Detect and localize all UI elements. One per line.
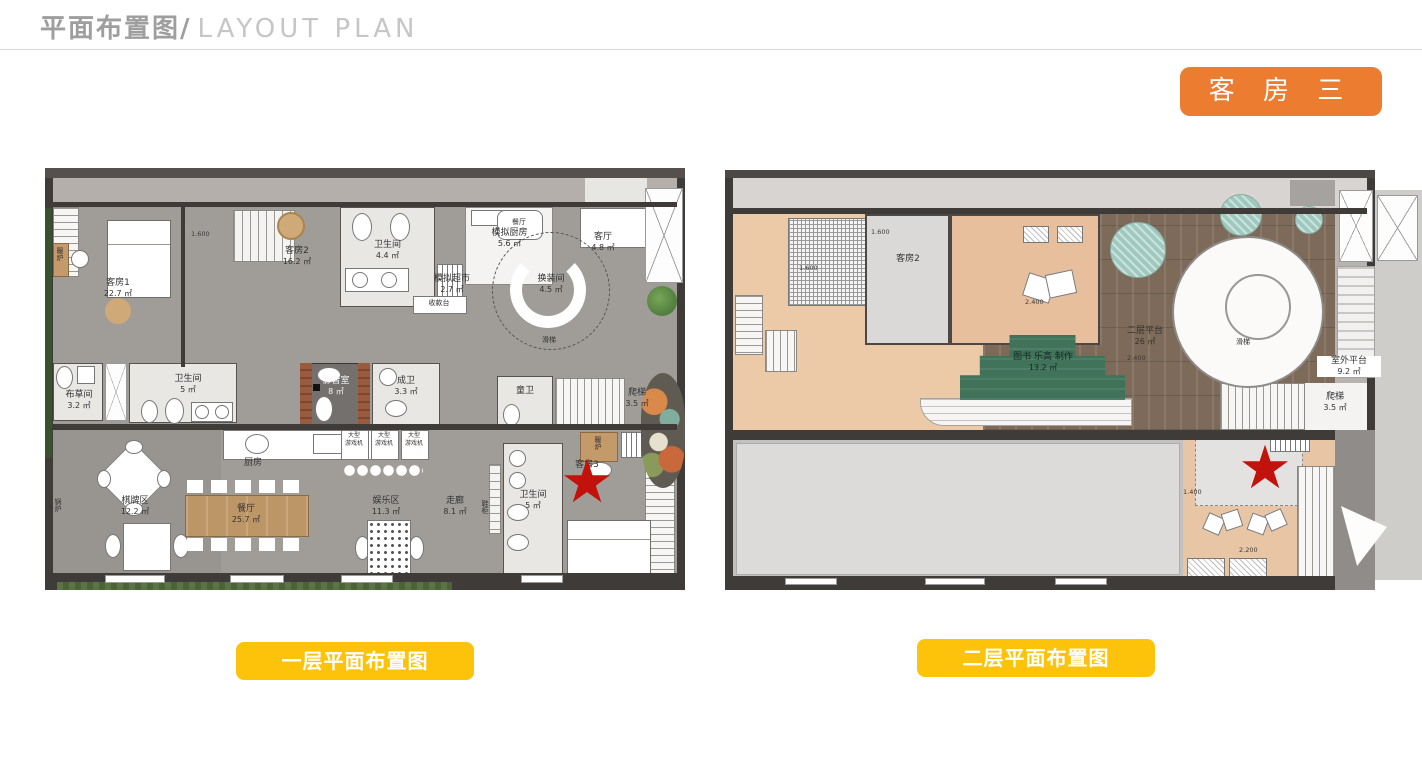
page-header: 平面布置图/LAYOUT PLAN	[40, 8, 418, 45]
room-name: 成卫	[397, 376, 415, 386]
toilet-icon	[385, 400, 407, 417]
room-name: 卫生间	[174, 374, 201, 384]
plant-icon	[647, 286, 677, 316]
window	[341, 575, 393, 583]
layout-plan-page: 平面布置图/LAYOUT PLAN 客 房 三 暖炉 客房1 22.7 ㎡ 1.…	[0, 0, 1422, 757]
level-marker: 2.400	[1025, 298, 1044, 306]
foosball-table	[367, 520, 411, 580]
room-name: 客厅	[594, 232, 612, 242]
room-label-mock-market: 模拟超市 2.7 ㎡	[409, 274, 495, 295]
room-area: 2.7 ㎡	[409, 285, 495, 295]
top-terrace-band	[53, 178, 677, 202]
level-marker: 2.400	[1127, 354, 1146, 362]
level-marker: 1.400	[1183, 488, 1202, 496]
window	[785, 578, 837, 585]
label-text: 游戏机	[402, 440, 426, 448]
hanging-chair	[277, 212, 305, 240]
room-label-mock-kitchen: 模拟厨房 5.6 ㎡	[467, 228, 552, 249]
room-area: 3.2 ㎡	[51, 401, 107, 411]
second-floor-plan: 1.600 1.600 客房2 2.400 滑梯 二层平台 26 ㎡	[725, 170, 1375, 590]
window	[1055, 578, 1107, 585]
sink-icon	[215, 405, 229, 419]
stairs-br-2f	[1297, 466, 1335, 578]
room-name: 模拟厨房	[491, 228, 527, 238]
open-void-room	[733, 440, 1183, 578]
room-area: 25.7 ㎡	[201, 515, 291, 525]
room-name: 模拟超市	[434, 274, 470, 284]
stairs-2f-left-b	[765, 330, 797, 372]
room-label-checkout: 收款台	[415, 299, 463, 308]
room-area: 4.5 ㎡	[519, 285, 583, 295]
window-x-remnant	[1377, 195, 1420, 263]
round-rug-teal	[1220, 194, 1262, 236]
stool-row	[343, 464, 423, 477]
room-label-kids-bathroom: 童卫	[497, 386, 553, 397]
top-terrace-band-2f	[733, 178, 1367, 208]
room-area: 13.2 ㎡	[973, 363, 1113, 373]
sink-icon	[381, 272, 397, 288]
bench-steps	[920, 398, 1132, 426]
round-rug-teal	[1110, 222, 1166, 278]
room-label-corridor: 走廊 8.1 ㎡	[429, 496, 481, 517]
sink-icon	[352, 272, 368, 288]
arcade-machine: 大型 游戏机	[401, 430, 429, 460]
kitchen-sink	[245, 434, 269, 454]
closet-x	[105, 363, 127, 421]
dining-chairs-bottom	[187, 538, 305, 551]
room-name: 图书 乐高 制作	[1013, 352, 1073, 362]
arcade-label: 大型 游戏机	[372, 432, 396, 447]
room-name: 二层平台	[1127, 326, 1163, 336]
first-floor-plan: 暖炉 客房1 22.7 ㎡ 1.600 客房2 16.2 ㎡ 卫生间 4.4 ㎡	[45, 168, 685, 590]
beanbag-icon	[315, 396, 333, 422]
room-label-play: 娱乐区 11.3 ㎡	[355, 496, 417, 517]
room-name: 餐厅	[237, 504, 255, 514]
room-label-stairs-1f: 爬梯 3.5 ㎡	[607, 388, 667, 409]
room-label-outdoor: 室外平台 9.2 ㎡	[1317, 356, 1381, 377]
room-area: 16.2 ㎡	[257, 257, 337, 267]
page-title-zh: 平面布置图/	[40, 14, 192, 44]
roof-strip	[45, 168, 685, 178]
skylight-hatch	[1229, 558, 1267, 578]
window-x-2f	[1339, 190, 1373, 262]
window	[925, 578, 985, 585]
room-name: 娱乐区	[372, 496, 399, 506]
level-marker: 2.200	[1239, 546, 1258, 554]
room-name: 布草间	[65, 390, 92, 400]
room-name: 童卫	[516, 386, 534, 396]
room-name: 厨房	[244, 458, 262, 468]
room-area: 22.7 ㎡	[73, 289, 163, 299]
label-text: 大型	[348, 432, 360, 439]
level-marker: 1.600	[871, 228, 890, 236]
label-text: 鞋柜	[481, 500, 489, 514]
slide-inner-ring	[1225, 274, 1291, 340]
level-text: 2.400	[1025, 298, 1044, 306]
window	[521, 575, 563, 583]
room-area: 8.1 ㎡	[429, 507, 481, 517]
sink-icon	[509, 450, 526, 467]
room-name: 餐厅	[512, 218, 526, 226]
arcade-machine: 大型 游戏机	[371, 430, 399, 460]
roof-strip-2f	[725, 170, 1375, 178]
toilet-icon	[56, 366, 73, 389]
room-label-media: 影音室 8 ㎡	[307, 376, 365, 397]
room-label-dining: 餐厅 25.7 ㎡	[201, 504, 291, 525]
room-area: 5 ㎡	[158, 385, 218, 395]
room-area: 12.2 ㎡	[97, 507, 173, 517]
room-area: 3.5 ㎡	[1305, 403, 1365, 413]
sink-icon	[195, 405, 209, 419]
grass-strip	[57, 582, 452, 590]
room-label-kitchen: 厨房	[227, 458, 279, 469]
round-rug	[105, 298, 131, 324]
top-wall-2f	[733, 208, 1367, 214]
toilet-icon	[507, 534, 529, 551]
room-label-lego: 图书 乐高 制作 13.2 ㎡	[973, 352, 1113, 373]
label-text: 暖炉	[56, 247, 64, 261]
player-chair	[409, 536, 424, 560]
room-area: 3.3 ㎡	[377, 387, 435, 397]
star-marker: ★	[555, 452, 619, 512]
room-area: 11.3 ㎡	[355, 507, 417, 517]
room-badge: 客 房 三	[1180, 67, 1382, 116]
terrace-gray-block	[1290, 180, 1335, 206]
room-label-kefang2-2f: 客房2	[883, 254, 933, 265]
room-name: 客房1	[106, 278, 130, 288]
arcade-label: 大型 游戏机	[402, 432, 426, 447]
room-label-kefang2: 客房2 16.2 ㎡	[257, 246, 337, 267]
room-name: 客房2	[285, 246, 309, 256]
room-name: 卫生间	[374, 240, 401, 250]
window	[105, 575, 165, 583]
room-name: 爬梯	[628, 388, 646, 398]
room-area: 26 ㎡	[1109, 337, 1181, 347]
room-name: 客房2	[896, 254, 920, 264]
room-area: 4.4 ㎡	[345, 251, 430, 261]
room-name: 换装间	[537, 274, 564, 284]
toilet-icon	[141, 400, 158, 423]
room-area: 3.5 ㎡	[607, 399, 667, 409]
room-label-chess: 棋牌区 12.2 ㎡	[97, 496, 173, 517]
toilet-icon	[390, 213, 410, 241]
chair-icon	[97, 470, 111, 488]
room-name: 爬梯	[1326, 392, 1344, 402]
terrace-white-section	[585, 178, 647, 202]
level-text: 1.600	[871, 228, 890, 236]
wall-kefang2-left	[181, 207, 185, 367]
label-text: 游戏机	[342, 440, 366, 448]
room-name: 室外平台	[1331, 356, 1367, 366]
dining-chairs-top	[187, 480, 305, 493]
heater-chair	[71, 250, 89, 268]
room-label-bathroom-mid: 卫生间 5 ㎡	[158, 374, 218, 395]
square-table	[123, 523, 171, 571]
top-wall	[53, 202, 677, 207]
label-text: 大型	[408, 432, 420, 439]
room-label-changing: 换装间 4.5 ㎡	[519, 274, 583, 295]
label-text: 大型	[378, 432, 390, 439]
room-label-kefang1: 客房1 22.7 ㎡	[73, 278, 163, 299]
toilet-icon	[503, 404, 520, 426]
label-text: 游戏机	[372, 440, 396, 448]
room-name: 影音室	[322, 376, 349, 386]
slide-label-1f: 滑梯	[527, 336, 571, 345]
room-name: 棋牌区	[121, 496, 148, 506]
room-label-bathroom-top: 卫生间 4.4 ㎡	[345, 240, 430, 261]
room-label-stairs-2f: 爬梯 3.5 ㎡	[1305, 392, 1365, 413]
toilet-icon	[352, 213, 372, 241]
room-label-adult-bathroom: 成卫 3.3 ㎡	[377, 376, 435, 397]
level-marker: 1.600	[799, 264, 818, 272]
room-area: 4.8 ㎡	[573, 243, 633, 253]
level-text: 1.600	[799, 264, 818, 272]
boiler-label: 锅炉	[54, 498, 61, 512]
header-divider	[0, 49, 1422, 50]
skylight-hatch	[1023, 226, 1049, 243]
room-name: 滑梯	[542, 336, 556, 344]
level-text: 1.600	[191, 230, 210, 238]
level-text: 1.400	[1183, 488, 1202, 496]
arcade-machine: 大型 游戏机	[341, 430, 369, 460]
shoe-cabinet-label: 鞋柜	[481, 500, 488, 514]
mid-wall	[53, 424, 677, 430]
shoe-cabinet	[489, 464, 501, 534]
chair-icon	[125, 440, 143, 454]
toilet-icon	[165, 398, 184, 424]
room-label-linen: 布草间 3.2 ㎡	[51, 390, 107, 411]
stairs-2f	[1220, 383, 1305, 430]
sink-icon	[509, 472, 526, 489]
skylight-hatch	[1057, 226, 1083, 243]
window	[230, 575, 284, 583]
level-text: 2.400	[1127, 354, 1146, 362]
room-area: 5.6 ㎡	[467, 239, 552, 249]
room-name: 收款台	[429, 299, 450, 307]
sink-icon	[77, 366, 95, 384]
arcade-label: 大型 游戏机	[342, 432, 366, 447]
net-area	[788, 218, 866, 306]
room-label-dining-small: 餐厅	[497, 218, 541, 227]
chair-icon	[105, 534, 121, 558]
stairs-2f-left	[735, 295, 763, 355]
room-name: 滑梯	[1236, 338, 1250, 346]
label-text: 锅炉	[54, 498, 62, 512]
outdoor-concrete	[1335, 430, 1375, 590]
window-x-icon	[1377, 195, 1418, 261]
level-text: 2.200	[1239, 546, 1258, 554]
room-name: 卫生间	[519, 490, 546, 500]
room-area: 5 ㎡	[503, 501, 563, 511]
room-area: 9.2 ㎡	[1317, 367, 1381, 377]
slide-label-2f: 滑梯	[1221, 338, 1265, 347]
level-marker: 1.600	[191, 230, 210, 238]
page-title-en: LAYOUT PLAN	[198, 14, 419, 44]
room-label-living: 客厅 4.8 ㎡	[573, 232, 633, 253]
chair-icon	[157, 470, 171, 488]
room-label-platform: 二层平台 26 ㎡	[1109, 326, 1181, 347]
first-floor-caption-button[interactable]: 一层平面布置图	[236, 642, 474, 680]
skylight-hatch	[1187, 558, 1225, 578]
room-name: 走廊	[446, 496, 464, 506]
second-floor-caption-button[interactable]: 二层平面布置图	[917, 639, 1155, 677]
left-vegetation	[45, 208, 52, 458]
room-area: 8 ㎡	[307, 387, 365, 397]
star-marker: ★	[1233, 438, 1297, 498]
heater-left-label: 暖炉	[56, 247, 63, 261]
room-label-bathroom-br: 卫生间 5 ㎡	[503, 490, 563, 511]
